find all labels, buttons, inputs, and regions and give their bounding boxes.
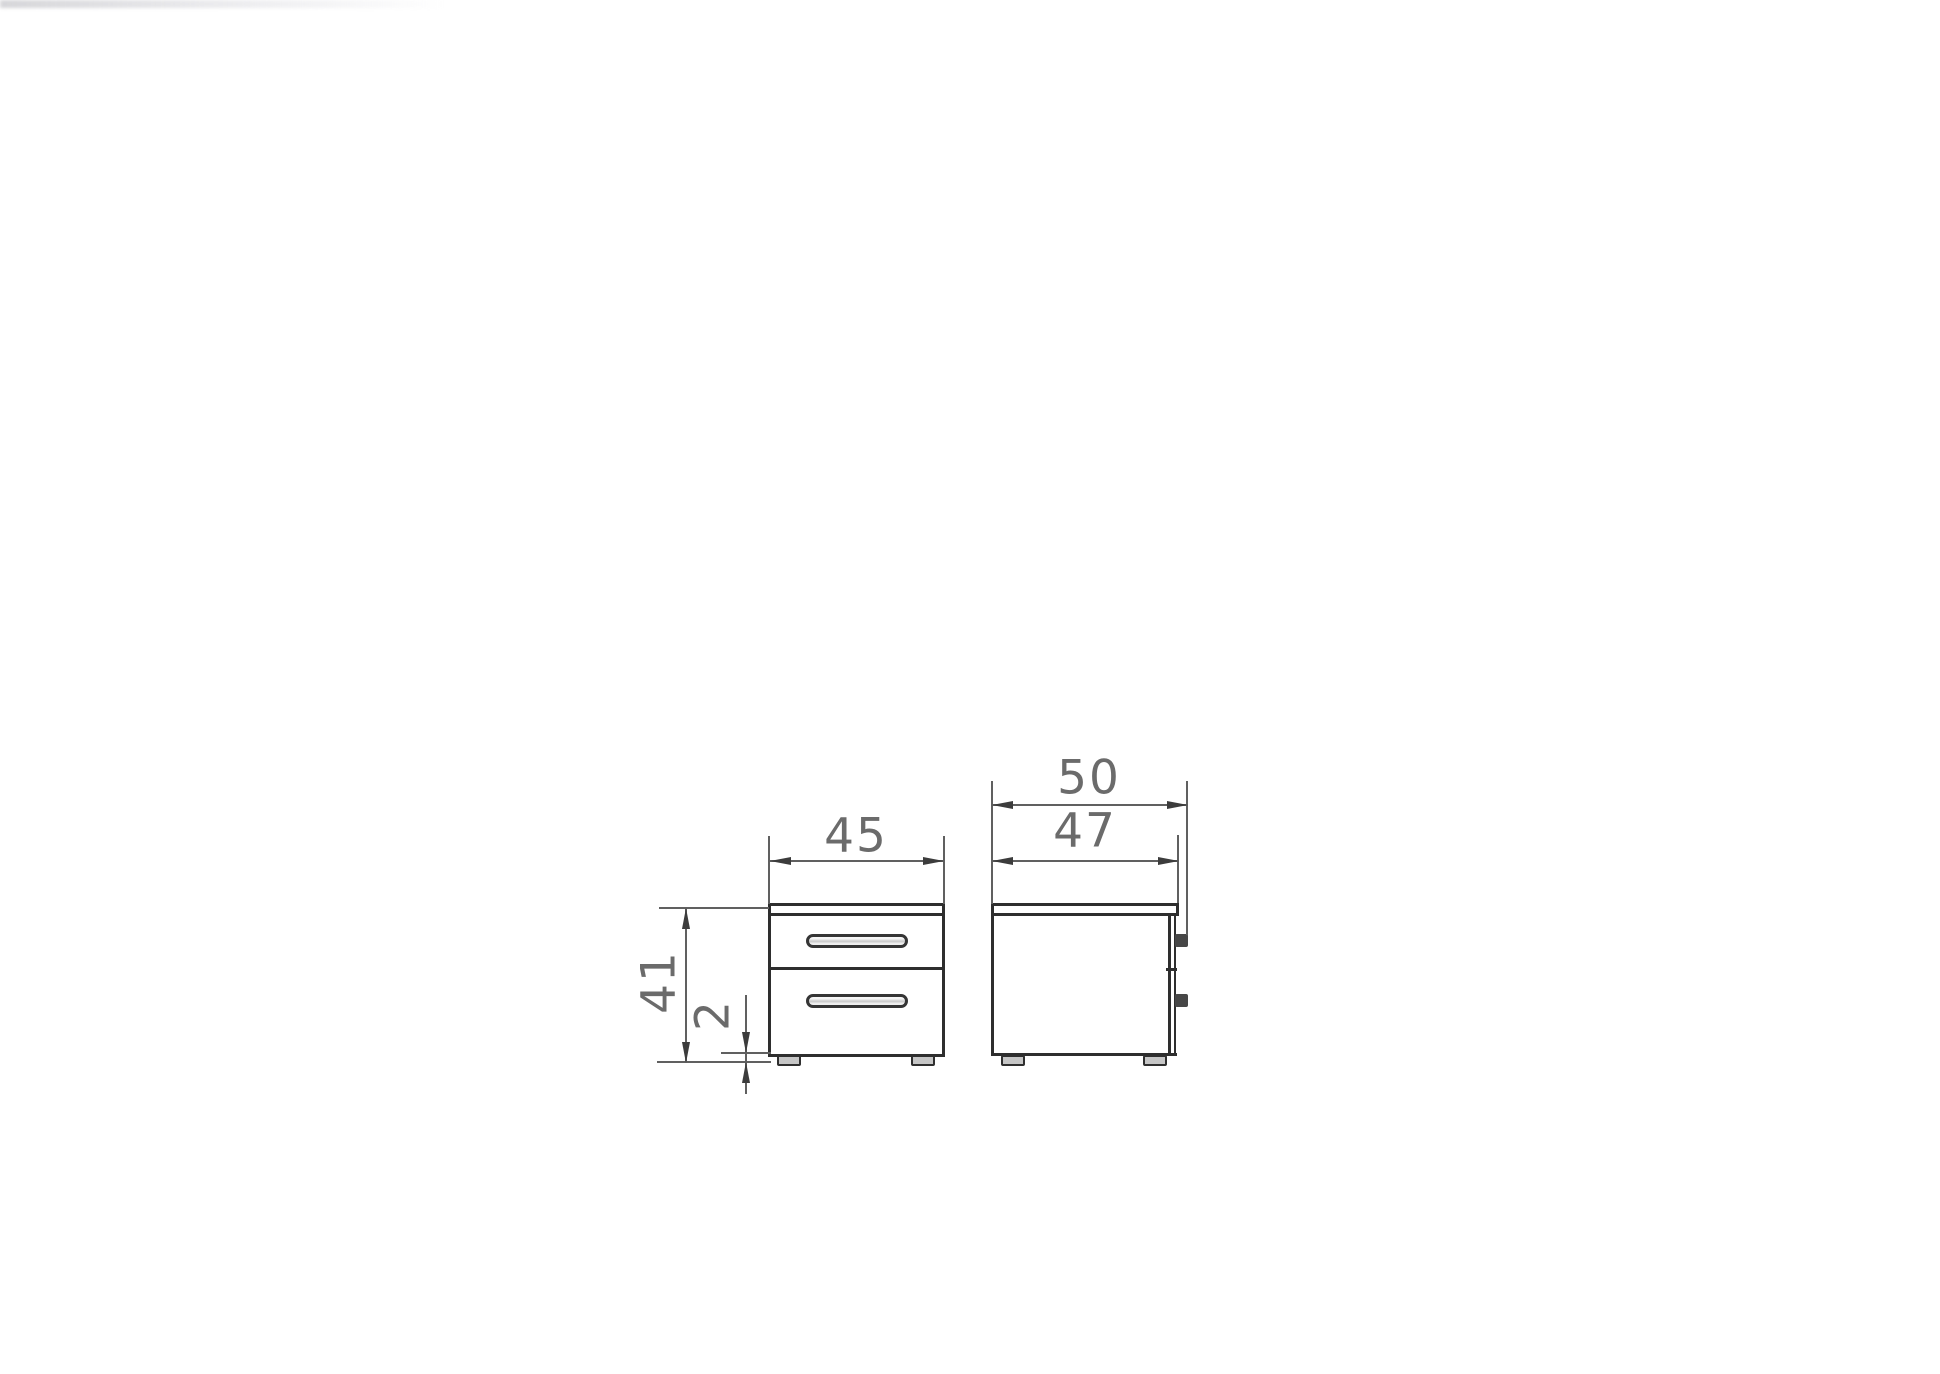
dimension-height-extension-bottom [657, 1061, 771, 1063]
dimension-width-extension-right [943, 836, 945, 904]
front-drawer2-handle [806, 994, 908, 1008]
dimension-width-label: 45 [824, 813, 888, 860]
dimension-depth-body-arrow-right [1158, 857, 1179, 865]
side-drawer-divider-tick [1166, 968, 1177, 971]
front-drawer-divider [768, 967, 945, 970]
dimension-width-arrow-left [770, 857, 791, 865]
front-carcass [768, 903, 945, 1057]
dimension-height-extension-top [659, 907, 769, 909]
dimension-height-arrow-top [682, 908, 690, 929]
dimension-width-extension-left [768, 836, 770, 904]
dimension-foot-height-arrow-lower [742, 1062, 750, 1083]
dimension-width-arrow-right [923, 857, 944, 865]
front-top-panel-line [768, 913, 945, 916]
side-carcass [991, 913, 1171, 1056]
dimension-foot-height-arrow-upper [742, 1032, 750, 1053]
dimension-height-label: 41 [636, 950, 683, 1014]
dimension-depth-body-extension-right [1177, 835, 1179, 903]
front-foot-left [777, 1055, 801, 1066]
dimension-depth-overall-arrow-right [1167, 801, 1188, 809]
front-drawer1-handle [806, 934, 908, 948]
dimension-height-arrow-bottom [682, 1042, 690, 1063]
dimension-depth-body-arrow-left [992, 857, 1013, 865]
dimension-depth-body-line [991, 860, 1179, 862]
dimension-depth-overall-extension-left [991, 781, 993, 904]
front-foot-right [911, 1055, 935, 1066]
side-foot-back [1001, 1055, 1025, 1066]
dimension-foot-height-label: 2 [690, 999, 737, 1031]
dimension-depth-overall-label: 50 [1057, 755, 1121, 802]
side-foot-front [1143, 1055, 1167, 1066]
dimension-depth-overall-arrow-left [992, 801, 1013, 809]
side-bottom-edge [1169, 1053, 1177, 1056]
side-handle-top [1175, 934, 1188, 947]
side-handle-bottom [1175, 994, 1188, 1007]
drawing-canvas: 45 41 2 [0, 0, 1940, 1374]
dimension-depth-body-label: 47 [1053, 808, 1117, 855]
scan-artifact [0, 0, 445, 8]
